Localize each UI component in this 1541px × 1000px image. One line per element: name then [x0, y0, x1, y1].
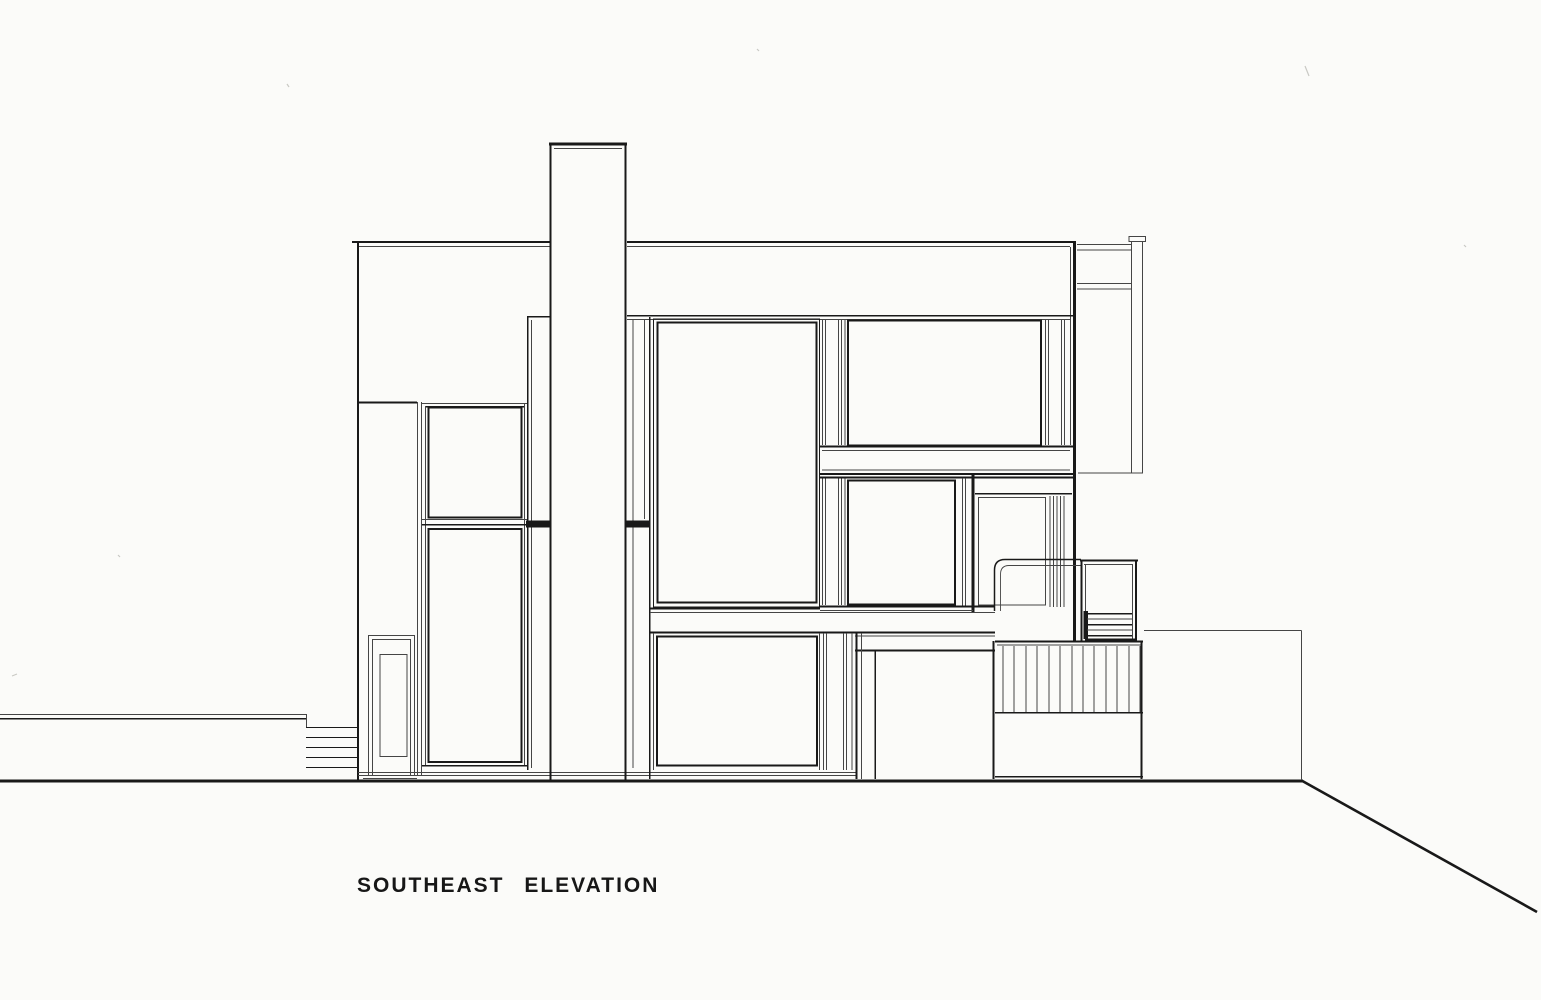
glazing-strip-left — [526, 317, 550, 770]
post-cap — [1129, 237, 1146, 242]
center-mullion-strip — [823, 319, 846, 605]
elevation-drawing — [0, 0, 1541, 1000]
drawing-sheet: SOUTHEAST ELEVATION — [0, 0, 1541, 1000]
drawing-caption: SOUTHEAST ELEVATION — [357, 874, 659, 898]
recessed-pane — [979, 498, 1046, 606]
window-pane-upper-right — [848, 321, 1041, 446]
window-pane-central — [658, 323, 817, 603]
porch-handrail — [995, 560, 1082, 612]
floor-band — [650, 609, 995, 651]
hill-slope-line — [1302, 781, 1538, 913]
entry-steps — [306, 728, 359, 768]
glazing-strip-right — [627, 317, 650, 779]
spandrel-band — [820, 451, 1073, 478]
entry-door — [363, 636, 417, 779]
window-pane-lower-right — [848, 481, 955, 605]
left-window-group — [357, 402, 528, 776]
lower-right-windows — [820, 474, 1072, 612]
window-pane-lower-left — [429, 529, 522, 762]
central-window — [654, 319, 820, 607]
upper-right-windows — [820, 319, 1073, 447]
ground-floor-windows — [654, 633, 853, 770]
roof-frame — [1077, 237, 1146, 474]
paper-specks — [12, 49, 1466, 676]
window-pane-upper-left — [429, 408, 522, 518]
door-leaf — [380, 655, 407, 757]
right-retaining-wall — [1144, 631, 1302, 781]
window-pane-ground — [657, 637, 817, 766]
louvered-screen — [995, 641, 1143, 779]
balcony-stair — [1080, 560, 1138, 642]
chimney — [549, 143, 627, 780]
site-ground — [0, 714, 1537, 912]
carport-opening — [857, 633, 994, 779]
